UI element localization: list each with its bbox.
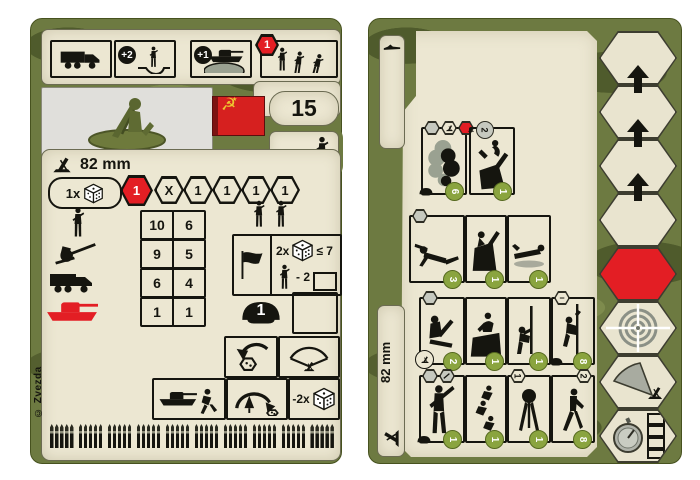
bullet-icon bbox=[147, 424, 151, 448]
bullet-icon bbox=[89, 424, 93, 448]
action-cost-badge: 1 bbox=[493, 182, 512, 201]
bullet-icon bbox=[258, 424, 262, 448]
caliber-label: 82 mm bbox=[378, 312, 404, 412]
arc-over-tree-icon bbox=[231, 383, 283, 416]
bullet-icon bbox=[84, 424, 88, 448]
curved-arrow-hex-icon bbox=[229, 341, 273, 374]
mortar-mini-icon bbox=[445, 124, 454, 132]
bullet-icon bbox=[142, 424, 146, 448]
action-cost-badge: 1 bbox=[529, 352, 548, 371]
bullet-icon bbox=[302, 424, 306, 448]
mortar-hex-badge bbox=[441, 121, 457, 135]
unit-tab bbox=[379, 35, 405, 149]
armor-helmet: 1 bbox=[238, 296, 284, 330]
die-icon bbox=[291, 239, 314, 262]
bullet-icon bbox=[128, 424, 132, 448]
bullet-icon bbox=[195, 424, 199, 448]
target-icon bbox=[606, 304, 670, 352]
range-hex-2-value: 1 bbox=[186, 179, 211, 202]
stat-panel: 82 mm 1x 1 X 1 1 1 1 10 bbox=[41, 149, 341, 461]
range-hex-5-value: 1 bbox=[273, 179, 298, 202]
attack-value-cell: 6 bbox=[140, 268, 174, 298]
action-go-prone: 1 bbox=[507, 215, 551, 283]
gray-hex-badge bbox=[422, 291, 438, 305]
action-march: 2 8 bbox=[551, 375, 595, 443]
bullet-icon bbox=[244, 424, 248, 448]
range-hex-1-value: X bbox=[157, 179, 182, 202]
attack-value-cell: 1 bbox=[140, 297, 174, 327]
bullet-icon bbox=[60, 424, 64, 448]
morale-marker-box bbox=[313, 272, 337, 291]
value: 6 bbox=[185, 217, 193, 233]
status-marker-box bbox=[292, 292, 338, 334]
bullet-icon bbox=[310, 424, 314, 448]
rally-cell bbox=[234, 236, 272, 294]
morale-box: 2x ≤ 7 - 2 bbox=[232, 234, 342, 296]
value: 9 bbox=[153, 246, 161, 262]
caliber-heading: 82 mm bbox=[50, 155, 131, 174]
firing-arc-hex bbox=[599, 355, 677, 409]
mortar-team-model-image bbox=[42, 88, 212, 154]
tank-escort-box bbox=[152, 378, 226, 420]
action-smoke-screen: 6 bbox=[421, 127, 467, 195]
value: 1 bbox=[153, 304, 161, 320]
bullet-icon bbox=[273, 424, 277, 448]
ammo-group bbox=[310, 424, 334, 450]
ammo-group bbox=[195, 424, 219, 450]
ammo-track bbox=[50, 424, 334, 450]
morale-roll: 2x ≤ 7 bbox=[276, 239, 333, 262]
helmet-mini-icon bbox=[548, 356, 564, 367]
attack-value-cell: 9 bbox=[140, 239, 174, 269]
points-pill: 15 bbox=[269, 91, 339, 126]
bullet-icon bbox=[315, 424, 319, 448]
unit-stat-card: +2 +1 1 bbox=[30, 18, 342, 464]
action-fire-from-position: 1 bbox=[465, 215, 507, 283]
flag-icon bbox=[238, 245, 266, 285]
truck-target-icon bbox=[48, 269, 96, 295]
bullet-icon bbox=[330, 424, 334, 448]
tank-target-icon bbox=[44, 298, 100, 324]
squad-size-icon bbox=[252, 200, 288, 228]
bullet-icon bbox=[268, 424, 272, 448]
range-hex-0: 1 bbox=[120, 175, 153, 206]
bullet-icon bbox=[55, 424, 59, 448]
mortar-icon bbox=[50, 155, 74, 174]
mortar-icon bbox=[382, 428, 401, 450]
range-hex-2: 1 bbox=[183, 176, 213, 204]
unit-photo bbox=[41, 87, 213, 155]
bullet-icon bbox=[229, 424, 233, 448]
action-cost-badge: 1 bbox=[485, 352, 504, 371]
bullet-icon bbox=[215, 424, 219, 448]
soldier-icon bbox=[274, 200, 288, 228]
fire-over-obstacle-box bbox=[226, 378, 288, 420]
helmet-mini-icon bbox=[416, 434, 432, 445]
dice-count-label: 1x bbox=[66, 186, 80, 201]
ammo-group bbox=[50, 424, 74, 450]
ammo-group bbox=[108, 424, 132, 450]
action-run: 1 bbox=[465, 375, 507, 443]
bullet-icon bbox=[137, 424, 141, 448]
soviet-flag: ☭ ★ bbox=[213, 97, 264, 135]
bullet-icon bbox=[94, 424, 98, 448]
ammo-group bbox=[224, 424, 248, 450]
return-to-hex-box bbox=[224, 336, 278, 378]
infantry-target-icon bbox=[70, 207, 86, 238]
range-hex-1: X bbox=[154, 176, 184, 204]
action-crawl: 3 bbox=[409, 215, 465, 283]
bullet-icon bbox=[166, 424, 170, 448]
entrench-bonus-box: +2 bbox=[114, 40, 176, 78]
bullet-icon bbox=[108, 424, 112, 448]
die-icon bbox=[83, 183, 104, 204]
value: 1 bbox=[185, 304, 193, 320]
minus-value: − bbox=[559, 293, 564, 303]
target-hex bbox=[599, 301, 677, 355]
bullet-icon bbox=[123, 424, 127, 448]
firing-fan-box bbox=[278, 336, 340, 378]
die-icon bbox=[312, 387, 336, 411]
bullet-icon bbox=[239, 424, 243, 448]
action-cost-badge: 6 bbox=[445, 182, 464, 201]
bullet-icon bbox=[325, 424, 329, 448]
gray-hex-glyph-badge bbox=[439, 369, 455, 383]
morale-dice-count: 2x bbox=[276, 244, 289, 258]
helmet-mini-icon bbox=[418, 186, 434, 197]
bullet-icon bbox=[99, 424, 103, 448]
star-icon: ★ bbox=[232, 96, 237, 103]
value: 5 bbox=[185, 246, 193, 262]
unit-order-card: 82 mm 6 2 bbox=[368, 18, 682, 464]
table-row: 10 6 bbox=[42, 210, 340, 236]
bullet-icon bbox=[70, 424, 74, 448]
range-hex-0-value: 1 bbox=[123, 178, 151, 204]
stopwatch-hex bbox=[599, 409, 677, 463]
copyright: © Zvezda bbox=[33, 355, 48, 429]
bullet-icon bbox=[287, 424, 291, 448]
range-hex-3-value: 1 bbox=[215, 179, 240, 202]
ammo-group bbox=[79, 424, 103, 450]
soldier-in-trench-icon bbox=[138, 44, 170, 74]
truck-icon bbox=[58, 47, 104, 71]
action-mortar-strike: 2 1 bbox=[469, 127, 515, 195]
value: 10 bbox=[149, 217, 165, 233]
soldier-icon bbox=[252, 200, 266, 228]
bullet-icon bbox=[234, 424, 238, 448]
count-value: 1 bbox=[513, 373, 523, 378]
bullet-icon bbox=[176, 424, 180, 448]
caliber-label: 82 mm bbox=[80, 156, 131, 174]
ammo-group bbox=[282, 424, 306, 450]
action-cost-badge: 1 bbox=[529, 270, 548, 289]
action-deploy-mortar: 2 bbox=[419, 297, 465, 365]
ambush-bonus-badge: +1 bbox=[194, 46, 212, 64]
ambush-bonus-box: +1 bbox=[190, 40, 252, 78]
entrench-bonus-badge: +2 bbox=[118, 46, 136, 64]
gray-hex-badge bbox=[424, 121, 440, 135]
range-hex-4-value: 1 bbox=[244, 179, 269, 202]
count-hex-badge: 1 bbox=[510, 369, 526, 383]
bullet-icon bbox=[292, 424, 296, 448]
action-climb-rope: − 8 bbox=[551, 297, 595, 365]
ambush-bonus-value: +1 bbox=[197, 50, 208, 61]
attack-value-cell: 10 bbox=[140, 210, 174, 240]
transport-box bbox=[50, 40, 112, 78]
mortar-mini-icon bbox=[467, 124, 475, 134]
bullet-icon bbox=[50, 424, 54, 448]
bullet-icon bbox=[65, 424, 69, 448]
move-up-arrow-icon bbox=[627, 173, 649, 201]
current-order-hex bbox=[599, 247, 677, 301]
bullet-icon bbox=[118, 424, 122, 448]
action-cost-badge: 8 bbox=[573, 430, 592, 449]
bullet-icon bbox=[157, 424, 161, 448]
bullet-icon bbox=[263, 424, 267, 448]
attack-value-cell: 6 bbox=[172, 210, 206, 240]
armor-value: 1 bbox=[238, 302, 284, 320]
bullet-icon bbox=[320, 424, 324, 448]
ammo-group bbox=[137, 424, 161, 450]
attack-value-cell: 5 bbox=[172, 239, 206, 269]
dice-prefix-pill: 1x bbox=[48, 177, 122, 209]
morale-test-cell: 2x ≤ 7 - 2 bbox=[272, 236, 340, 294]
value: 4 bbox=[185, 275, 193, 291]
action-stand-and-fire: 1 bbox=[419, 375, 465, 443]
move-up-arrow-icon bbox=[627, 65, 649, 93]
bullet-icon bbox=[113, 424, 117, 448]
action-cost-badge: 1 bbox=[529, 430, 548, 449]
firing-arc-icon bbox=[606, 359, 670, 405]
caliber-tab: 82 mm bbox=[377, 305, 405, 457]
bullet-icon bbox=[181, 424, 185, 448]
soldier-icon bbox=[278, 264, 291, 290]
stopwatch-icon bbox=[606, 412, 670, 460]
turn-delay-badge: 2 bbox=[476, 121, 494, 139]
ammo-group bbox=[166, 424, 190, 450]
action-cost-badge: 1 bbox=[485, 270, 504, 289]
action-climb-obstacle: 1 bbox=[465, 297, 507, 365]
bullet-icon bbox=[186, 424, 190, 448]
bullet-icon bbox=[210, 424, 214, 448]
action-cost-badge: 1 bbox=[443, 430, 462, 449]
morale-penalty: - 2 bbox=[296, 270, 310, 284]
ammo-penalty-label: -2x bbox=[292, 392, 309, 406]
action-pack-mortar: 1 1 bbox=[507, 375, 551, 443]
mortar-circle-mini-icon bbox=[415, 350, 434, 369]
gray-hex-badge bbox=[412, 209, 428, 223]
firing-fan-icon bbox=[283, 341, 335, 374]
bullet-icon bbox=[79, 424, 83, 448]
action-cost-badge: 1 bbox=[485, 430, 504, 449]
morale-threshold: ≤ 7 bbox=[316, 244, 333, 258]
bullet-icon bbox=[253, 424, 257, 448]
prone-soldier-icon bbox=[383, 43, 401, 51]
turn-delay-value: 2 bbox=[480, 127, 490, 132]
bullet-icon bbox=[171, 424, 175, 448]
bullet-icon bbox=[200, 424, 204, 448]
count-value: 2 bbox=[579, 373, 589, 378]
count-hex-badge: 2 bbox=[576, 369, 592, 383]
bullet-icon bbox=[297, 424, 301, 448]
ammo-penalty-box: -2x bbox=[288, 378, 340, 420]
points-value: 15 bbox=[291, 95, 317, 122]
attack-value-cell: 1 bbox=[172, 297, 206, 327]
bullet-icon bbox=[205, 424, 209, 448]
header-strip: +2 +1 1 bbox=[41, 29, 341, 85]
range-hex-3: 1 bbox=[212, 176, 242, 204]
order-hex-slot bbox=[599, 193, 677, 247]
advancing-soldiers-icon bbox=[276, 45, 334, 73]
tank-and-runner-icon bbox=[157, 383, 221, 416]
gray-hex-badge bbox=[422, 369, 438, 383]
entrench-bonus-value: +2 bbox=[121, 50, 132, 61]
minus-hex-badge: − bbox=[554, 291, 570, 305]
value: 6 bbox=[153, 275, 161, 291]
action-cost-badge: 3 bbox=[443, 270, 462, 289]
bullet-icon bbox=[282, 424, 286, 448]
bullet-icon bbox=[224, 424, 228, 448]
gun-target-icon bbox=[52, 240, 98, 265]
attack-value-cell: 4 bbox=[172, 268, 206, 298]
move-up-arrow-icon bbox=[627, 119, 649, 147]
bullet-icon bbox=[152, 424, 156, 448]
action-signal-pole: 1 bbox=[507, 297, 551, 365]
assault-hex-value: 1 bbox=[258, 37, 277, 54]
assault-box: 1 bbox=[260, 40, 338, 78]
ammo-group bbox=[253, 424, 277, 450]
